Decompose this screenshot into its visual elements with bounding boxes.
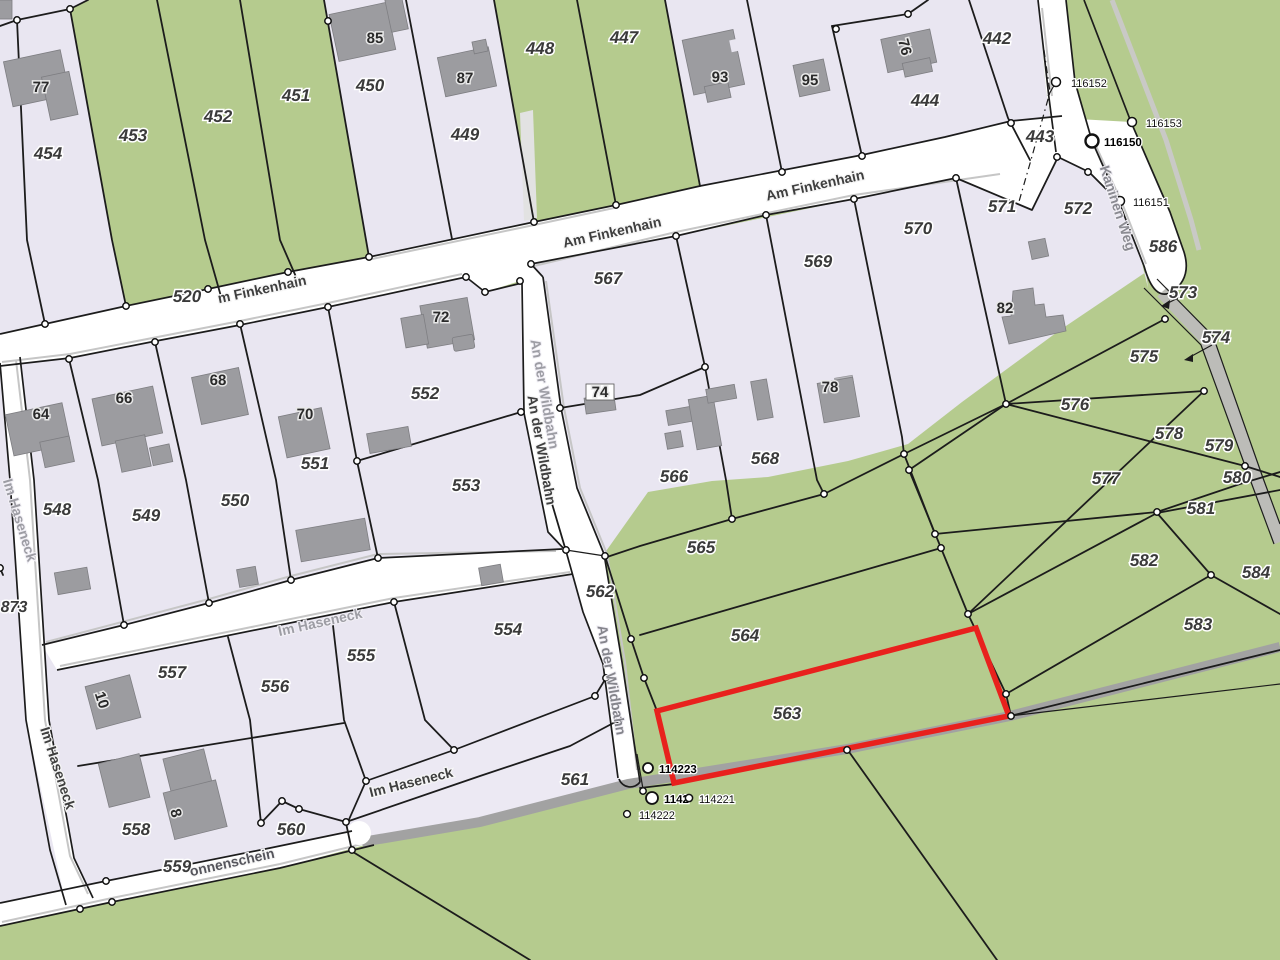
svg-text:586: 586 — [1149, 237, 1178, 256]
svg-text:93: 93 — [712, 69, 729, 86]
svg-text:454: 454 — [33, 144, 63, 163]
svg-text:447: 447 — [609, 28, 640, 47]
svg-text:571: 571 — [988, 197, 1016, 216]
svg-text:442: 442 — [982, 29, 1012, 48]
svg-text:561: 561 — [561, 770, 589, 789]
svg-text:444: 444 — [910, 91, 940, 110]
svg-text:568: 568 — [751, 449, 780, 468]
svg-text:573: 573 — [1169, 283, 1198, 302]
svg-text:78: 78 — [822, 379, 839, 396]
svg-text:443: 443 — [1025, 127, 1055, 146]
svg-text:550: 550 — [221, 491, 250, 510]
svg-text:564: 564 — [731, 626, 760, 645]
svg-text:549: 549 — [132, 506, 161, 525]
svg-text:116152: 116152 — [1071, 78, 1107, 90]
svg-text:560: 560 — [277, 820, 306, 839]
svg-text:567: 567 — [594, 269, 624, 288]
svg-text:555: 555 — [347, 646, 376, 665]
svg-text:582: 582 — [1130, 551, 1159, 570]
svg-text:577: 577 — [1092, 469, 1122, 488]
svg-text:559: 559 — [163, 857, 192, 876]
svg-text:64: 64 — [33, 406, 50, 423]
svg-text:569: 569 — [804, 252, 833, 271]
svg-text:563: 563 — [773, 704, 802, 723]
svg-text:70: 70 — [297, 406, 314, 423]
svg-text:82: 82 — [997, 300, 1014, 317]
svg-text:450: 450 — [355, 76, 385, 95]
svg-text:566: 566 — [660, 467, 689, 486]
svg-text:580: 580 — [1223, 468, 1252, 487]
svg-text:87: 87 — [457, 70, 474, 87]
svg-text:116153: 116153 — [1146, 118, 1182, 130]
svg-text:562: 562 — [586, 582, 615, 601]
svg-text:72: 72 — [433, 309, 450, 326]
svg-text:572: 572 — [1064, 199, 1093, 218]
svg-text:556: 556 — [261, 677, 290, 696]
svg-text:453: 453 — [118, 126, 148, 145]
svg-text:95: 95 — [802, 72, 819, 89]
svg-text:558: 558 — [122, 820, 151, 839]
svg-text:552: 552 — [411, 384, 440, 403]
svg-text:548: 548 — [43, 500, 72, 519]
svg-text:85: 85 — [367, 30, 384, 47]
svg-text:557: 557 — [158, 663, 188, 682]
svg-text:68: 68 — [210, 372, 227, 389]
svg-text:451: 451 — [281, 86, 310, 105]
svg-text:66: 66 — [116, 390, 133, 407]
svg-text:565: 565 — [687, 538, 716, 557]
svg-text:448: 448 — [525, 39, 555, 58]
svg-text:579: 579 — [1205, 436, 1234, 455]
svg-text:873: 873 — [1, 599, 28, 616]
svg-text:584: 584 — [1242, 563, 1271, 582]
svg-text:116151: 116151 — [1133, 197, 1169, 209]
svg-text:578: 578 — [1155, 424, 1184, 443]
svg-text:551: 551 — [301, 454, 329, 473]
svg-text:449: 449 — [450, 125, 480, 144]
svg-text:74: 74 — [592, 384, 609, 401]
svg-text:116150: 116150 — [1104, 137, 1142, 149]
svg-text:581: 581 — [1187, 499, 1215, 518]
svg-text:583: 583 — [1184, 615, 1213, 634]
svg-text:452: 452 — [203, 107, 233, 126]
svg-text:114222: 114222 — [639, 810, 675, 822]
svg-text:520: 520 — [173, 287, 202, 306]
svg-text:554: 554 — [494, 620, 523, 639]
svg-text:114223: 114223 — [659, 764, 697, 776]
svg-text:114221: 114221 — [699, 794, 735, 806]
svg-text:576: 576 — [1061, 395, 1090, 414]
svg-text:575: 575 — [1130, 347, 1159, 366]
svg-text:570: 570 — [904, 219, 933, 238]
svg-text:574: 574 — [1202, 328, 1231, 347]
svg-text:553: 553 — [452, 476, 481, 495]
svg-text:77: 77 — [33, 79, 50, 96]
